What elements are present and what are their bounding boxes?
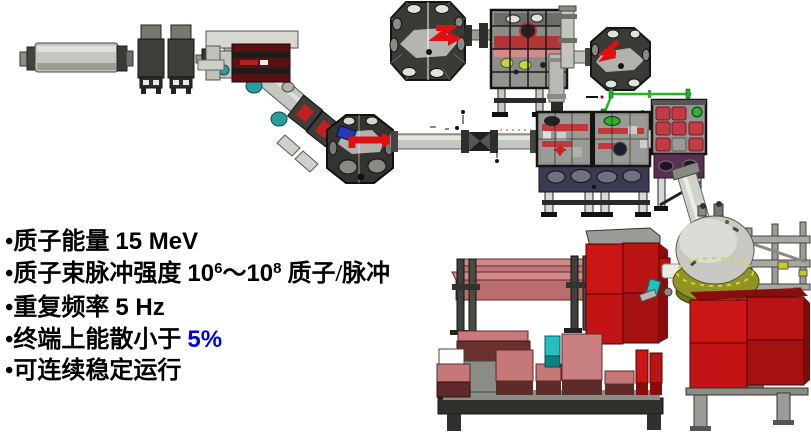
spec-line-4: •终端上能散小于 5% <box>5 324 390 356</box>
spec-segment: ～ <box>222 261 246 287</box>
spec-segment: •质子束脉冲强度 <box>5 261 187 287</box>
caged-instrument-box-top <box>491 10 567 117</box>
spec-segment: 质子/脉冲 <box>282 261 391 287</box>
experiment-chamber-large <box>537 112 651 217</box>
spec-line-2: •质子束脉冲强度 106～108 质子/脉冲 <box>5 258 390 292</box>
spec-segment: •质子能量 <box>5 229 115 255</box>
vertical-beam-pipe-top <box>558 6 592 68</box>
beam-rail-trestles <box>450 256 594 335</box>
spec-segment: •终端上能散小于 <box>5 327 187 353</box>
pipe-coupling-top <box>465 23 491 48</box>
slide-canvas: •质子能量 15 MeV•质子束脉冲强度 106～108 质子/脉冲•重复频率 … <box>0 0 811 436</box>
spec-segment: 10 <box>187 260 214 287</box>
spec-segment: 10 <box>246 260 273 287</box>
spec-segment: 6 <box>214 260 222 277</box>
analysis-chamber-octagon <box>327 115 396 183</box>
spec-segment: 15 MeV <box>115 228 198 255</box>
shielding-platform-left <box>437 331 663 431</box>
spec-segment: 8 <box>273 260 281 277</box>
bending-magnet-1 <box>198 31 298 82</box>
spec-segment: •重复频率 <box>5 295 115 321</box>
spec-line-1: •质子能量 15 MeV <box>5 226 390 258</box>
shielding-blocks-right <box>686 288 810 431</box>
spec-line-3: •重复频率 5 Hz <box>5 292 390 324</box>
vacuum-chamber-octagon-top-right <box>591 28 650 90</box>
spec-segment: 5 Hz <box>115 294 164 321</box>
spec-line-5: •可连续稳定运行 <box>5 356 390 387</box>
spec-segment: •可连续稳定运行 <box>5 358 181 384</box>
vacuum-chamber-octagon-top-left <box>390 2 465 80</box>
ion-source-and-quadrupoles <box>20 25 218 94</box>
specs-panel: •质子能量 15 MeV•质子束脉冲强度 106～108 质子/脉冲•重复频率 … <box>5 226 390 387</box>
spec-segment: 5% <box>187 326 222 353</box>
